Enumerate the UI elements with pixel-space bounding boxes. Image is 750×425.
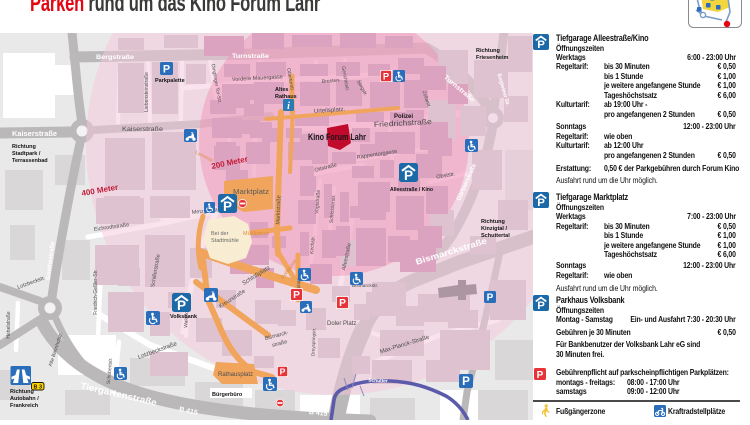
svg-text:Friedrich-Geßler-Str.: Friedrich-Geßler-Str. [93, 269, 99, 315]
svg-text:Volksbank: Volksbank [170, 314, 198, 320]
svg-text:Mühlgasse: Mühlgasse [243, 231, 270, 237]
svg-text:Terrassenbad: Terrassenbad [12, 158, 48, 164]
svg-text:Bei der: Bei der [211, 231, 229, 237]
svg-text:Richtung: Richtung [10, 389, 34, 395]
svg-text:Parkpalette: Parkpalette [155, 78, 185, 84]
svg-text:Kaiserstraße: Kaiserstraße [122, 126, 163, 133]
svg-text:Kinzigtal /: Kinzigtal / [481, 226, 507, 232]
svg-text:Marktstraße: Marktstraße [275, 195, 282, 225]
svg-text:Autobahn /: Autobahn / [10, 396, 39, 402]
svg-text:Richtung: Richtung [481, 219, 505, 225]
svg-text:Frankreich: Frankreich [10, 403, 39, 409]
svg-text:Dreyspringstr.: Dreyspringstr. [311, 328, 317, 357]
svg-text:Altes: Altes [275, 87, 288, 93]
svg-text:Liebensteinstraße: Liebensteinstraße [144, 72, 150, 112]
svg-text:Kaiserstraße: Kaiserstraße [12, 129, 57, 138]
svg-text:P: P [537, 39, 545, 50]
svg-text:Kino Forum Lahr: Kino Forum Lahr [308, 132, 366, 142]
svg-text:Richtung: Richtung [12, 144, 36, 150]
svg-text:Turnstraße: Turnstraße [232, 53, 269, 60]
svg-text:Friesenheim: Friesenheim [476, 55, 509, 61]
svg-text:Rathausplatz: Rathausplatz [218, 372, 253, 378]
svg-text:Polizei: Polizei [394, 114, 413, 120]
svg-text:P: P [537, 300, 545, 311]
svg-text:B 3: B 3 [34, 385, 43, 391]
svg-text:Stadtpark /: Stadtpark / [12, 151, 41, 157]
svg-text:P: P [537, 370, 544, 380]
svg-text:Bürgerbüro: Bürgerbüro [212, 392, 243, 398]
svg-text:Schuttertal: Schuttertal [481, 233, 510, 239]
svg-text:Doler Platz: Doler Platz [327, 321, 356, 327]
svg-text:Schutter: Schutter [368, 378, 388, 385]
svg-text:P: P [537, 197, 545, 208]
svg-text:Alleestraße / Kino: Alleestraße / Kino [390, 187, 434, 193]
svg-text:Hebelstraße: Hebelstraße [6, 311, 12, 338]
svg-text:Richtung: Richtung [476, 48, 500, 54]
svg-text:Marktplatz: Marktplatz [233, 187, 269, 196]
svg-text:Stadtmühle: Stadtmühle [211, 238, 239, 244]
svg-text:Bergstraße: Bergstraße [96, 54, 134, 61]
